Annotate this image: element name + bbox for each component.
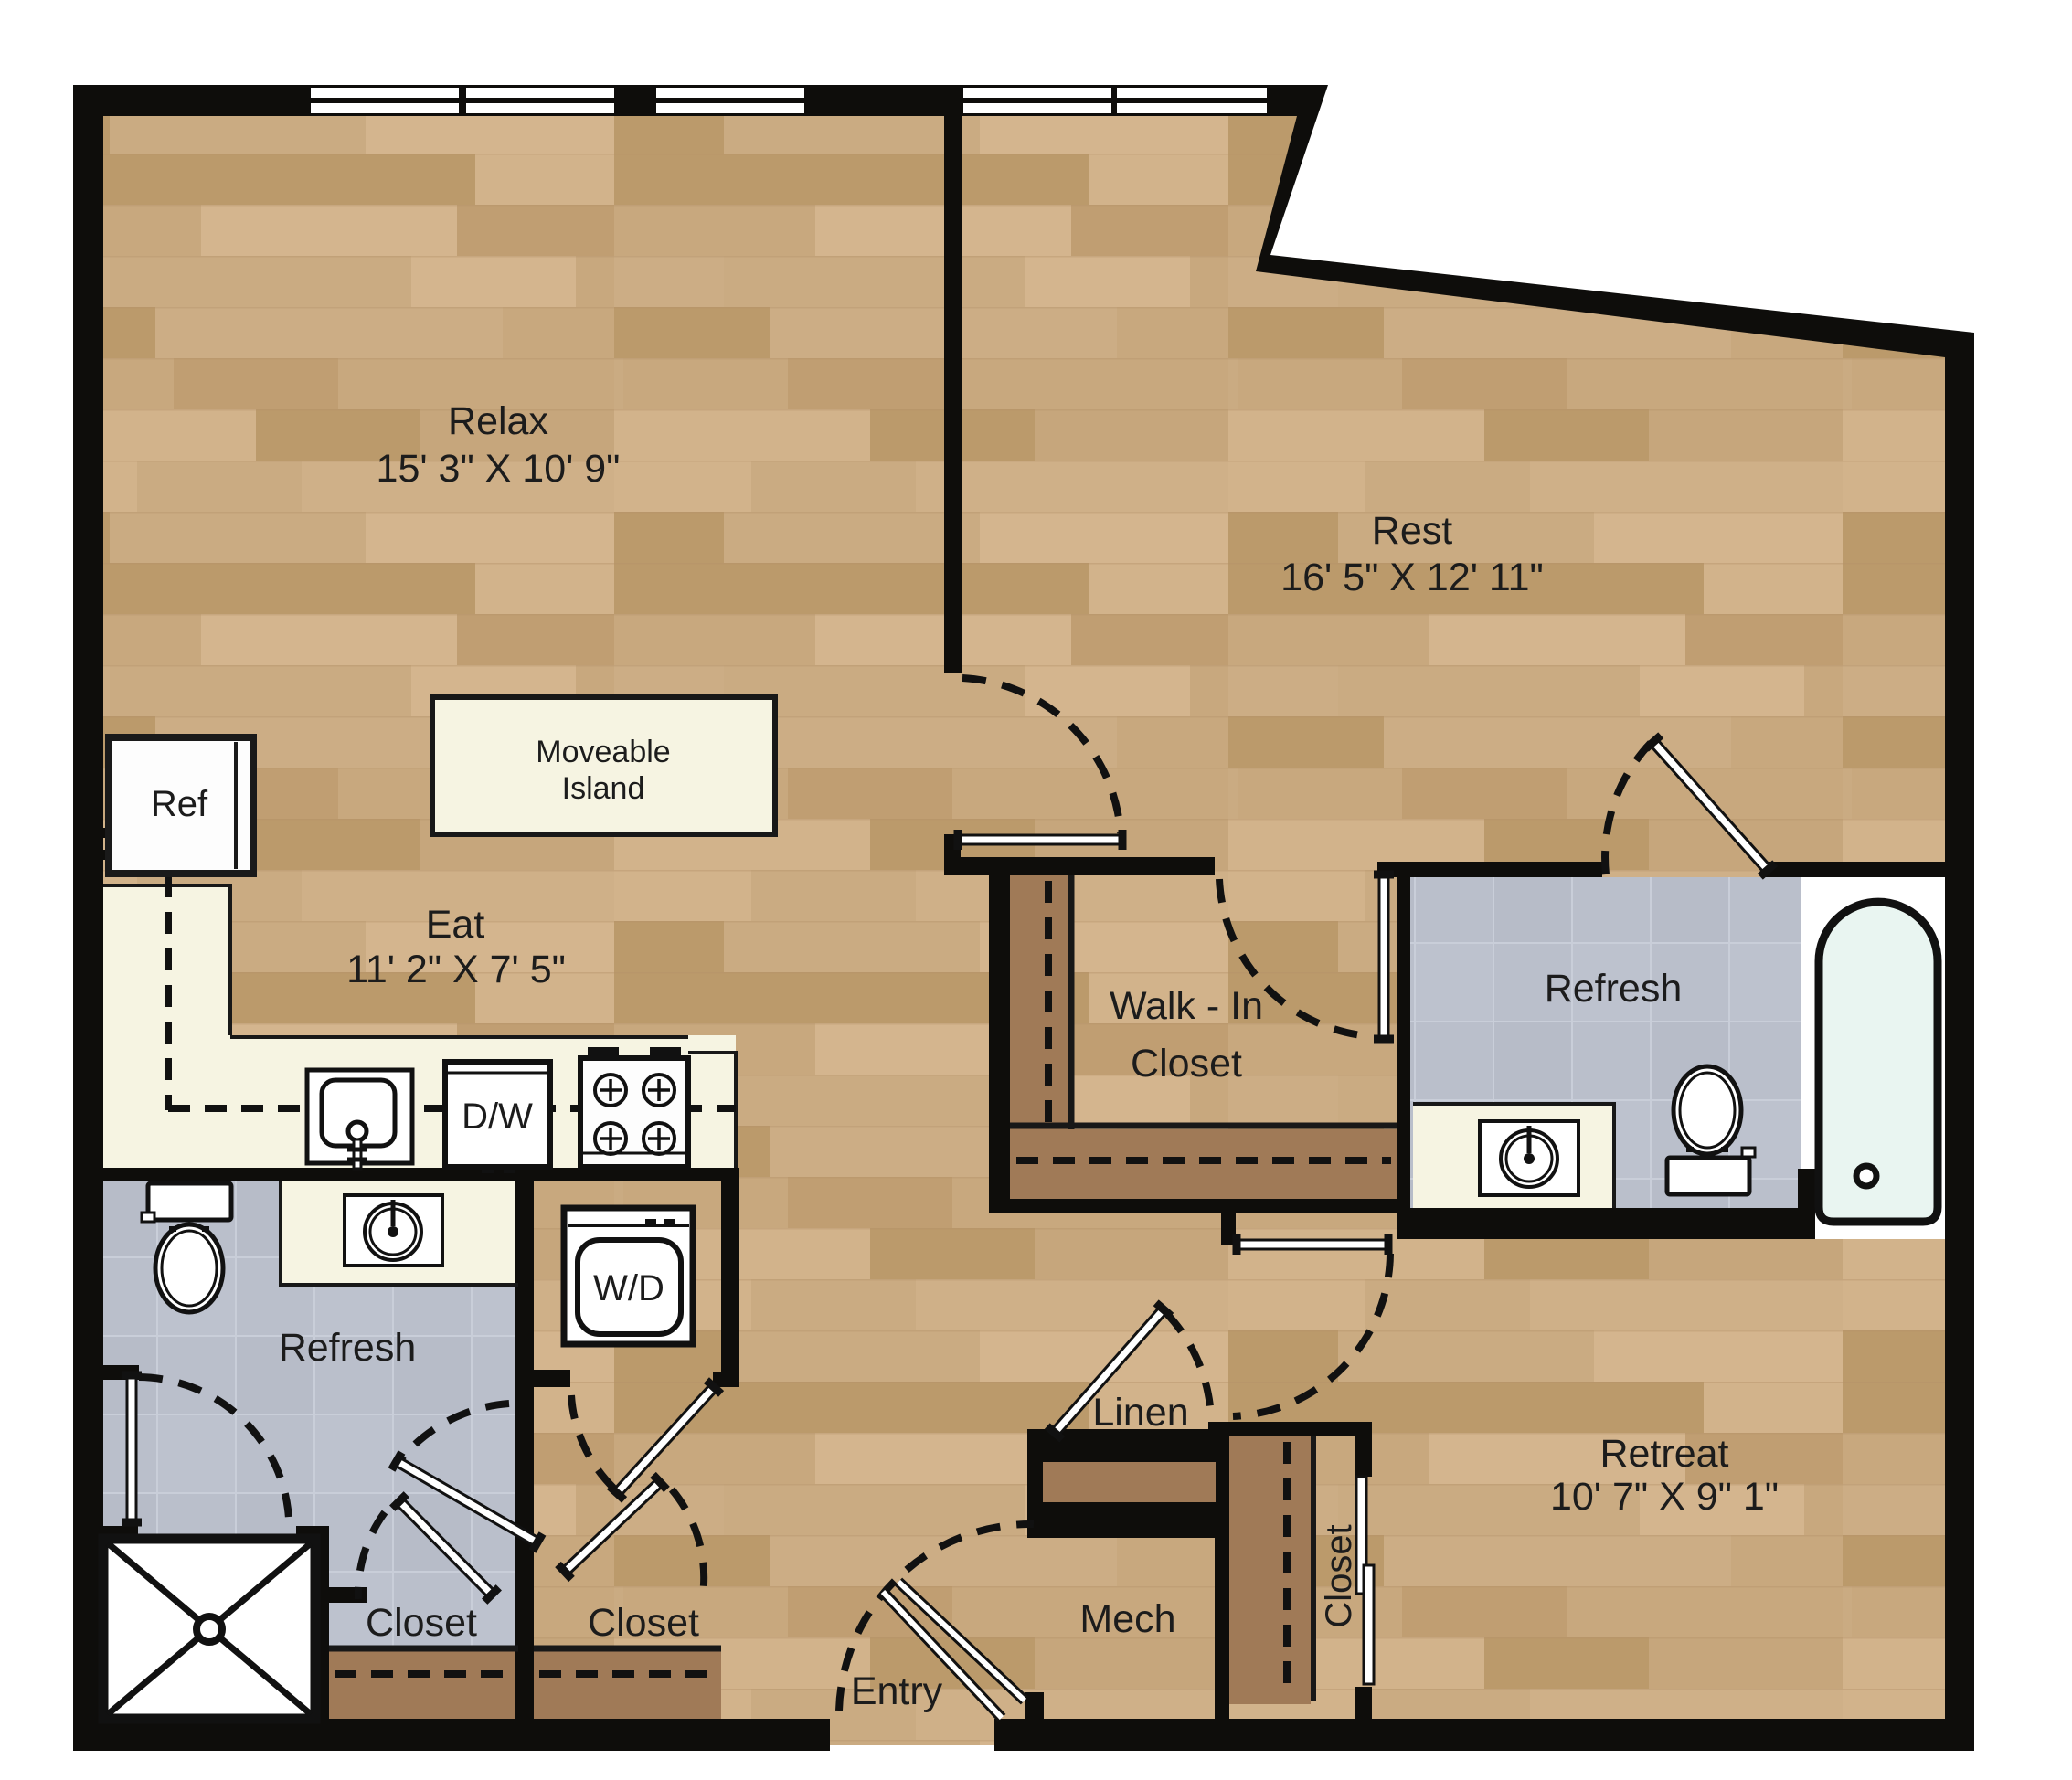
svg-text:10' 7" X 9" 1": 10' 7" X 9" 1": [1550, 1475, 1779, 1519]
svg-text:Refresh: Refresh: [279, 1326, 417, 1370]
svg-text:11' 2" X 7' 5": 11' 2" X 7' 5": [346, 948, 566, 991]
svg-text:Rest: Rest: [1372, 509, 1452, 553]
svg-text:Closet: Closet: [1319, 1524, 1359, 1627]
svg-text:Ref: Ref: [151, 784, 208, 824]
svg-text:Closet: Closet: [1131, 1042, 1242, 1086]
svg-text:Mech: Mech: [1079, 1597, 1175, 1641]
svg-text:Relax: Relax: [448, 399, 548, 443]
svg-text:W/D: W/D: [593, 1268, 664, 1309]
svg-text:Moveable: Moveable: [536, 735, 670, 769]
svg-text:15' 3" X 10' 9": 15' 3" X 10' 9": [377, 447, 621, 491]
svg-text:Refresh: Refresh: [1545, 967, 1683, 1011]
svg-text:Island: Island: [562, 771, 645, 806]
svg-text:D/W: D/W: [462, 1097, 533, 1137]
svg-text:Retreat: Retreat: [1599, 1432, 1728, 1476]
svg-text:Linen: Linen: [1092, 1391, 1188, 1435]
svg-text:Eat: Eat: [426, 903, 485, 947]
svg-text:Entry: Entry: [851, 1669, 943, 1713]
svg-text:Walk - In: Walk - In: [1110, 984, 1263, 1028]
svg-text:Closet: Closet: [588, 1601, 699, 1645]
svg-text:16' 5" X 12' 11": 16' 5" X 12' 11": [1280, 556, 1544, 599]
svg-text:Closet: Closet: [366, 1601, 477, 1645]
